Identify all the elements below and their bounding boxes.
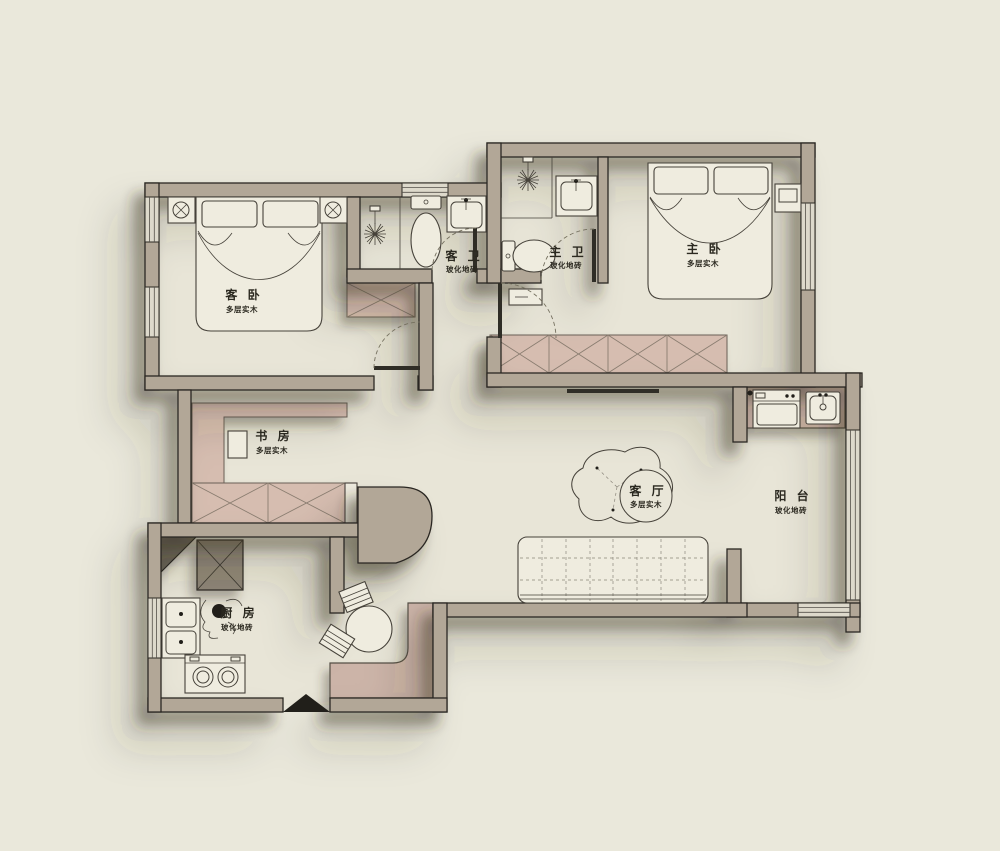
toilet-icon — [411, 196, 441, 267]
sofa-icon — [518, 537, 708, 603]
master-bed-icon — [648, 163, 772, 299]
toilet-icon — [502, 240, 555, 272]
room-label-guest-bedroom: 客 卧 多层实木 — [224, 287, 262, 314]
master-wardrobe-icon — [490, 335, 727, 373]
tv-icon — [567, 389, 659, 393]
floor-plan-canvas: 客 卧 多层实木 客 卫 玻化地砖 主 卫 玻化地砖 主 卧 多层实木 书 房 … — [0, 0, 1000, 851]
window-icon — [801, 203, 815, 290]
nightstand-icon — [775, 184, 801, 212]
dresser-icon — [509, 289, 542, 305]
svg-text:阳 台: 阳 台 — [774, 488, 811, 503]
bathroom-sink-icon — [556, 176, 597, 216]
svg-text:客 厅: 客 厅 — [628, 483, 666, 498]
room-label-master-bathroom: 主 卫 玻化地砖 — [549, 244, 586, 270]
room-label-master-bedroom: 主 卧 多层实木 — [686, 241, 723, 268]
svg-text:玻化地砖: 玻化地砖 — [221, 622, 253, 632]
bathroom-sink-icon — [447, 196, 486, 232]
svg-text:多层实木: 多层实木 — [687, 258, 719, 268]
floor-plan-page: 客 卧 多层实木 客 卫 玻化地砖 主 卫 玻化地砖 主 卧 多层实木 书 房 … — [0, 0, 1000, 851]
svg-text:客 卧: 客 卧 — [224, 287, 262, 302]
kitchen-sink-icon — [162, 598, 200, 658]
svg-text:客 卫: 客 卫 — [444, 248, 482, 263]
study-wardrobe-icon — [192, 483, 357, 523]
svg-text:玻化地砖: 玻化地砖 — [446, 264, 478, 274]
window-icon — [798, 603, 850, 617]
svg-text:厨 房: 厨 房 — [220, 605, 257, 620]
window-icon — [148, 598, 161, 658]
svg-text:多层实木: 多层实木 — [256, 445, 288, 455]
svg-text:多层实木: 多层实木 — [630, 499, 662, 509]
washing-machine-icon — [748, 390, 801, 428]
room-label-guest-bathroom: 客 卫 玻化地砖 — [444, 248, 482, 274]
room-label-kitchen: 厨 房 玻化地砖 — [220, 605, 257, 632]
svg-text:玻化地砖: 玻化地砖 — [775, 505, 807, 515]
svg-text:主 卧: 主 卧 — [686, 241, 723, 256]
fridge-icon — [197, 540, 243, 590]
dining-table-icon — [346, 606, 392, 652]
nightstand-icon — [320, 197, 347, 223]
nightstand-icon — [168, 197, 195, 223]
room-label-balcony: 阳 台 玻化地砖 — [774, 488, 811, 515]
svg-text:主 卫: 主 卫 — [549, 244, 586, 259]
window-icon — [402, 183, 448, 197]
svg-text:玻化地砖: 玻化地砖 — [550, 260, 582, 270]
guest-bed-icon — [196, 197, 322, 331]
room-label-study: 书 房 多层实木 — [255, 428, 292, 455]
guest-wardrobe-icon — [347, 283, 415, 317]
balcony-sink-icon — [806, 392, 840, 424]
window-icon — [145, 197, 159, 242]
study-chair-icon — [228, 431, 247, 458]
window-icon — [846, 430, 860, 600]
room-label-living-room: 客 厅 多层实木 — [628, 483, 666, 509]
stove-icon — [185, 655, 245, 693]
svg-text:多层实木: 多层实木 — [226, 304, 258, 314]
svg-text:书 房: 书 房 — [255, 428, 292, 443]
window-icon — [145, 287, 159, 337]
